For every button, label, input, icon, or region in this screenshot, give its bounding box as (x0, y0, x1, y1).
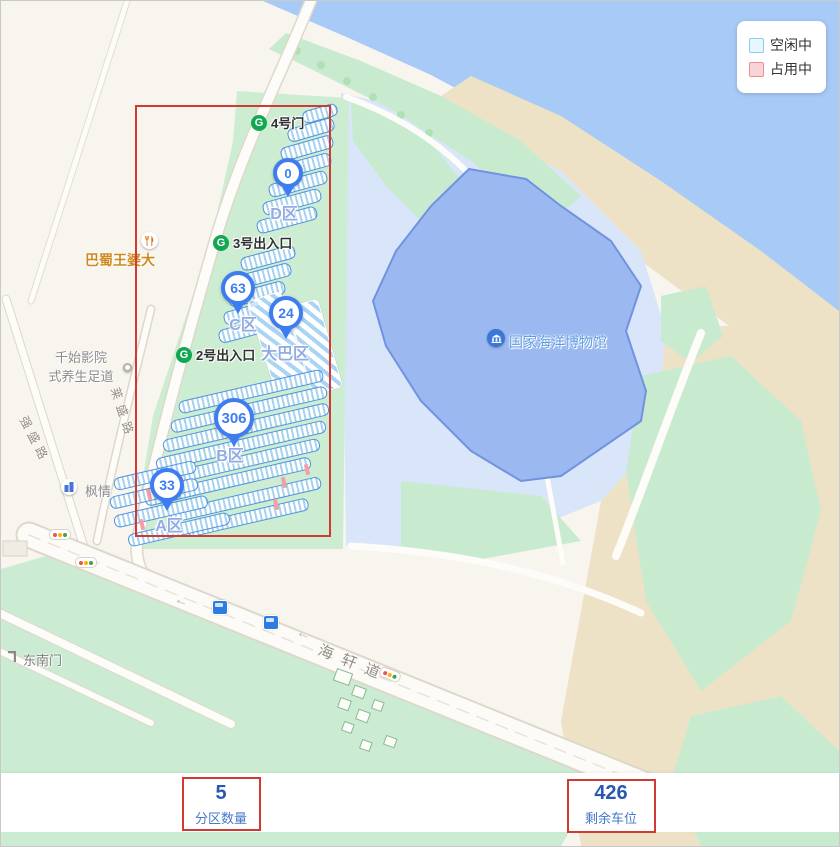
occupied-status-swatch (749, 62, 764, 77)
building-icon (61, 479, 77, 495)
annotation-rect-partitions (182, 777, 261, 831)
museum-icon (487, 329, 505, 347)
door-icon (7, 650, 18, 668)
legend-item-occupied[interactable]: 占用中 (749, 59, 812, 79)
bus-icon (263, 615, 279, 630)
poi-fengqing-label: 枫情 (85, 481, 111, 500)
annotation-rect-parking (135, 105, 331, 537)
free-status-swatch (749, 38, 764, 53)
legend-label: 占用中 (770, 59, 812, 79)
traffic-light-icon (75, 557, 97, 568)
poi-cinema-label: 千始影院 式养生足道 (29, 348, 133, 386)
legend: 空闲中 占用中 (737, 21, 826, 93)
building-outline (3, 541, 27, 556)
annotation-rect-remaining (567, 779, 656, 833)
bus-icon (212, 600, 228, 615)
poi-cinema-line1: 千始影院 (29, 348, 133, 367)
poi-cinema-line2: 式养生足道 (29, 367, 133, 386)
legend-label: 空闲中 (770, 35, 812, 55)
poi-se-gate-label: 东南门 (23, 650, 62, 669)
stats-bar: 5 分区数量 426 剩余车位 (1, 773, 839, 832)
poi-dot-icon (123, 363, 132, 372)
poi-museum-label: 国家海洋博物馆 (509, 332, 607, 352)
parking-map-app: G 4号门 G 3号出入口 G 2号出入口 0 63 24 306 33 D区 … (0, 0, 840, 847)
traffic-light-icon (49, 529, 71, 540)
legend-item-free[interactable]: 空闲中 (749, 35, 812, 55)
